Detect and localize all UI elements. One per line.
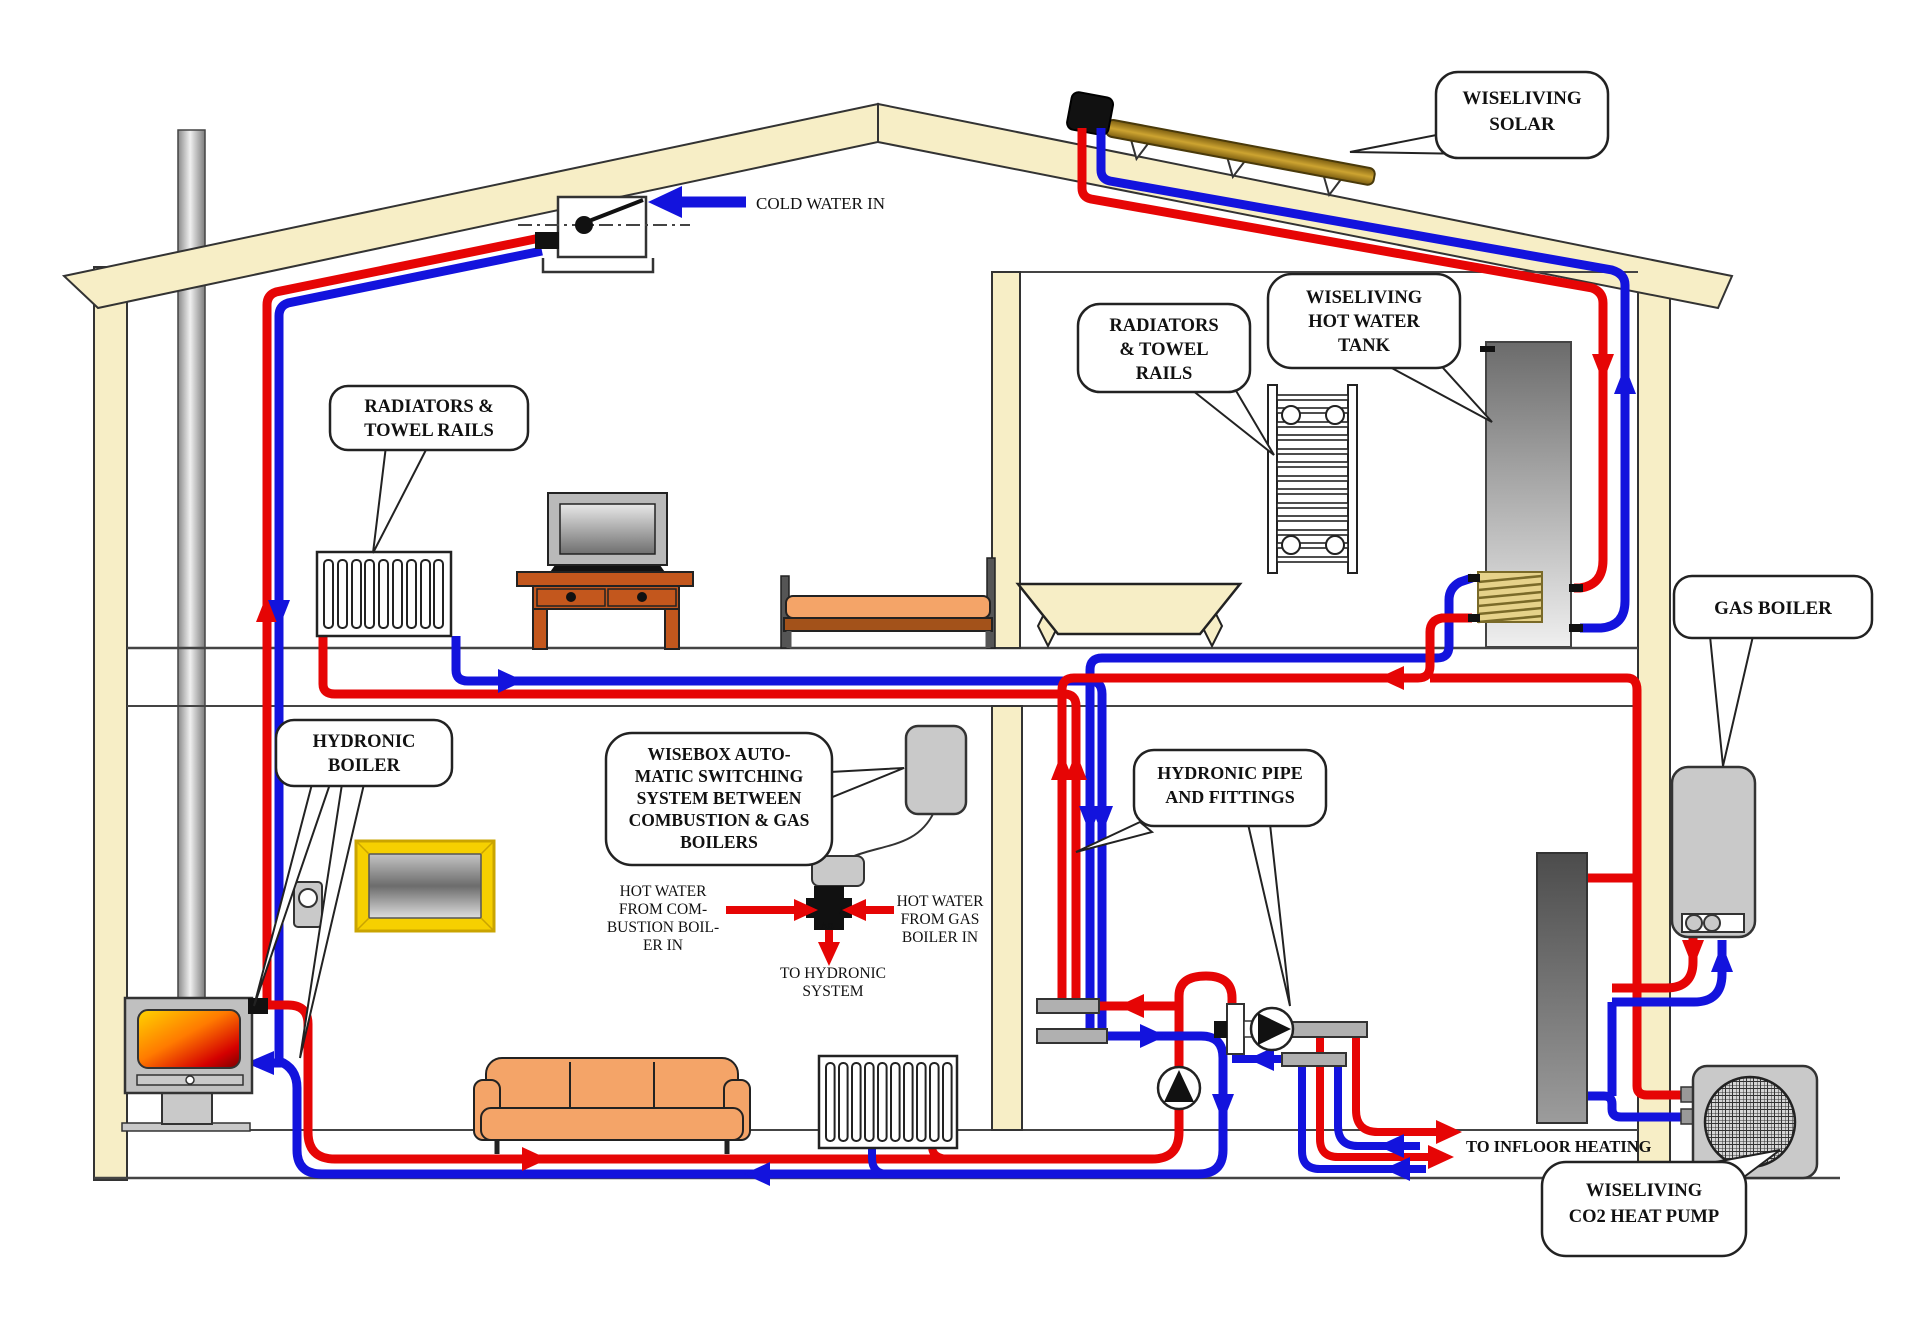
bathtub [1018, 584, 1240, 646]
manifold-bar [1282, 1053, 1346, 1066]
arrow-up [1711, 944, 1733, 972]
callout-solar-line: WISELIVING [1462, 88, 1582, 109]
arrow-right [1436, 1120, 1462, 1144]
heat-pump-fan [1705, 1077, 1795, 1167]
wisebox-unit [854, 726, 966, 856]
callout-radiators-left-line: TOWEL RAILS [364, 421, 494, 441]
callout-hwt-line: HOT WATER [1308, 312, 1420, 332]
drawer-knob [566, 592, 576, 602]
coil-stub [1468, 614, 1480, 622]
tail-radiators-right [1192, 384, 1274, 455]
tail-wisebox [830, 768, 904, 798]
interior-wall-upper [992, 272, 1020, 648]
diagram-canvas: COLD WATER IN [0, 0, 1920, 1343]
stove-stand [162, 1092, 212, 1124]
arrow-right [522, 1147, 548, 1171]
rail-post [1268, 385, 1277, 573]
callout-hydronic-boiler-line: BOILER [328, 756, 401, 776]
hw-combustion-line: ER IN [643, 937, 683, 954]
rail-post [1348, 385, 1357, 573]
pipe-network [246, 128, 1733, 1186]
cold-water-label: COLD WATER IN [756, 194, 885, 213]
tank-outlet-fitting [535, 232, 559, 249]
arrow-right [1428, 1145, 1454, 1169]
solar-header-box [1066, 91, 1114, 136]
callout-wisebox-line: MATIC SWITCHING [635, 766, 804, 786]
rail-knob [1326, 536, 1344, 554]
callout-wisebox-line: WISEBOX AUTO- [647, 744, 790, 764]
hw-combustion-line: HOT WATER [620, 883, 707, 900]
tv-screen [560, 504, 655, 554]
valve-port-ab: AB [821, 921, 834, 931]
tail-gas-boiler [1710, 636, 1753, 766]
hydronic-boiler-stove [122, 998, 268, 1131]
mattress [786, 596, 990, 618]
flue-thermostat [294, 882, 322, 927]
arrow-left [744, 1162, 770, 1186]
infloor-hot-pipe [1356, 1037, 1438, 1132]
hw-combustion-line: FROM COM- [619, 901, 707, 918]
radiator-slats [324, 560, 443, 628]
callout-wisebox-line: SYSTEM BETWEEN [637, 788, 802, 808]
rail-knob [1326, 406, 1344, 424]
towel-rail [1268, 385, 1357, 573]
tank-bracket [543, 258, 653, 272]
fire-window [138, 1010, 240, 1068]
bed [781, 558, 995, 648]
arrow-down [1682, 940, 1704, 968]
bed-base [784, 618, 992, 631]
tank-stub [1569, 624, 1583, 632]
sofa-seat [481, 1108, 743, 1140]
mirror-glass [369, 854, 481, 918]
left-wall [94, 267, 127, 1180]
to-hydronic-line: TO HYDRONIC [780, 965, 886, 982]
callout-radiators-right-line: RADIATORS [1109, 316, 1218, 336]
tv-on-desk [517, 493, 693, 649]
callout-hydronic-pipe-line: AND FITTINGS [1165, 787, 1295, 807]
tail-radiators-left [373, 446, 428, 553]
stove-knob [186, 1076, 194, 1084]
callout-hydronic-boiler [276, 720, 452, 786]
boiler-dial [1686, 915, 1702, 931]
downstairs-radiator [819, 1056, 957, 1148]
right-wall [1638, 270, 1670, 1178]
switching-valve-detail: B A AB HOT WATER FROM COM- BUSTION BOIL-… [607, 856, 984, 1000]
hw-gas-line: HOT WATER [897, 893, 984, 910]
desk-top [517, 572, 693, 586]
tail-hydronic-pipe [1248, 824, 1290, 1006]
callout-radiators-left-line: RADIATORS & [364, 397, 493, 417]
arrow-right [1140, 1024, 1166, 1048]
interior-wall-lower [992, 706, 1022, 1130]
zone-valve-actuator [1214, 1021, 1227, 1038]
zone-valve-body [1227, 1004, 1244, 1054]
callout-co2-line: WISELIVING [1586, 1181, 1702, 1201]
manifold-bar [1292, 1022, 1367, 1037]
rail-knob [1282, 406, 1300, 424]
callout-radiators-right-line: & TOWEL [1119, 340, 1208, 360]
callout-gas-boiler-line: GAS BOILER [1714, 598, 1832, 619]
wisebox-cable [854, 812, 934, 856]
valve-arch-pipe [1179, 976, 1232, 1008]
callout-hwt-line: TANK [1338, 336, 1391, 356]
callout-wisebox-line: BOILERS [680, 832, 758, 852]
sofa [474, 1058, 750, 1154]
hw-gas-line: BOILER IN [902, 929, 978, 946]
callout-hydronic-pipe-line: HYDRONIC PIPE [1157, 763, 1303, 783]
arrow-down [818, 942, 840, 966]
tank-fitting [1480, 346, 1495, 352]
gas-boiler-body [1672, 767, 1755, 937]
arrow-left [1118, 994, 1144, 1018]
hw-combustion-line: BUSTION BOIL- [607, 919, 719, 936]
callout-radiators-right-line: RAILS [1136, 364, 1193, 384]
wisebox-controller [906, 726, 966, 814]
callout-solar-line: SOLAR [1489, 114, 1555, 135]
callout-co2-line: CO2 HEAT PUMP [1569, 1207, 1719, 1227]
drawer-knob [637, 592, 647, 602]
upstairs-radiator [317, 552, 451, 636]
arrow-up [1614, 366, 1636, 394]
arrow-right [498, 669, 524, 693]
header-tank: COLD WATER IN [518, 186, 885, 272]
rail-knob [1282, 536, 1300, 554]
arrow-left [1378, 666, 1404, 690]
panel-radiator [1537, 853, 1587, 1123]
desk-leg [533, 609, 547, 649]
hot-water-tank [1468, 342, 1583, 647]
manifold-bar [1037, 999, 1099, 1013]
to-infloor-label: TO INFLOOR HEATING [1466, 1137, 1652, 1156]
boiler-dial [1704, 915, 1720, 931]
manifold-bar [1037, 1029, 1107, 1043]
callout-hwt-line: WISELIVING [1306, 288, 1422, 308]
arrow-down [1212, 1094, 1234, 1122]
tank-stub [1569, 584, 1583, 592]
float-ball [575, 216, 593, 234]
thermostat-dial [299, 889, 317, 907]
mirror-frame [356, 841, 494, 931]
arrow-up [1065, 752, 1087, 780]
to-hydronic-line: SYSTEM [802, 983, 863, 1000]
gas-boiler-unit [1672, 767, 1755, 937]
callout-hydronic-boiler-line: HYDRONIC [313, 732, 416, 752]
stove-top-fitting [248, 998, 268, 1014]
coil-stub [1468, 574, 1480, 582]
heating-system-diagram: COLD WATER IN [0, 0, 1920, 1343]
arrow-down [1592, 354, 1614, 382]
desk-leg [665, 609, 679, 649]
hw-gas-line: FROM GAS [901, 911, 980, 928]
tub-body [1018, 584, 1240, 634]
callout-wisebox-line: COMBUSTION & GAS [629, 810, 810, 830]
